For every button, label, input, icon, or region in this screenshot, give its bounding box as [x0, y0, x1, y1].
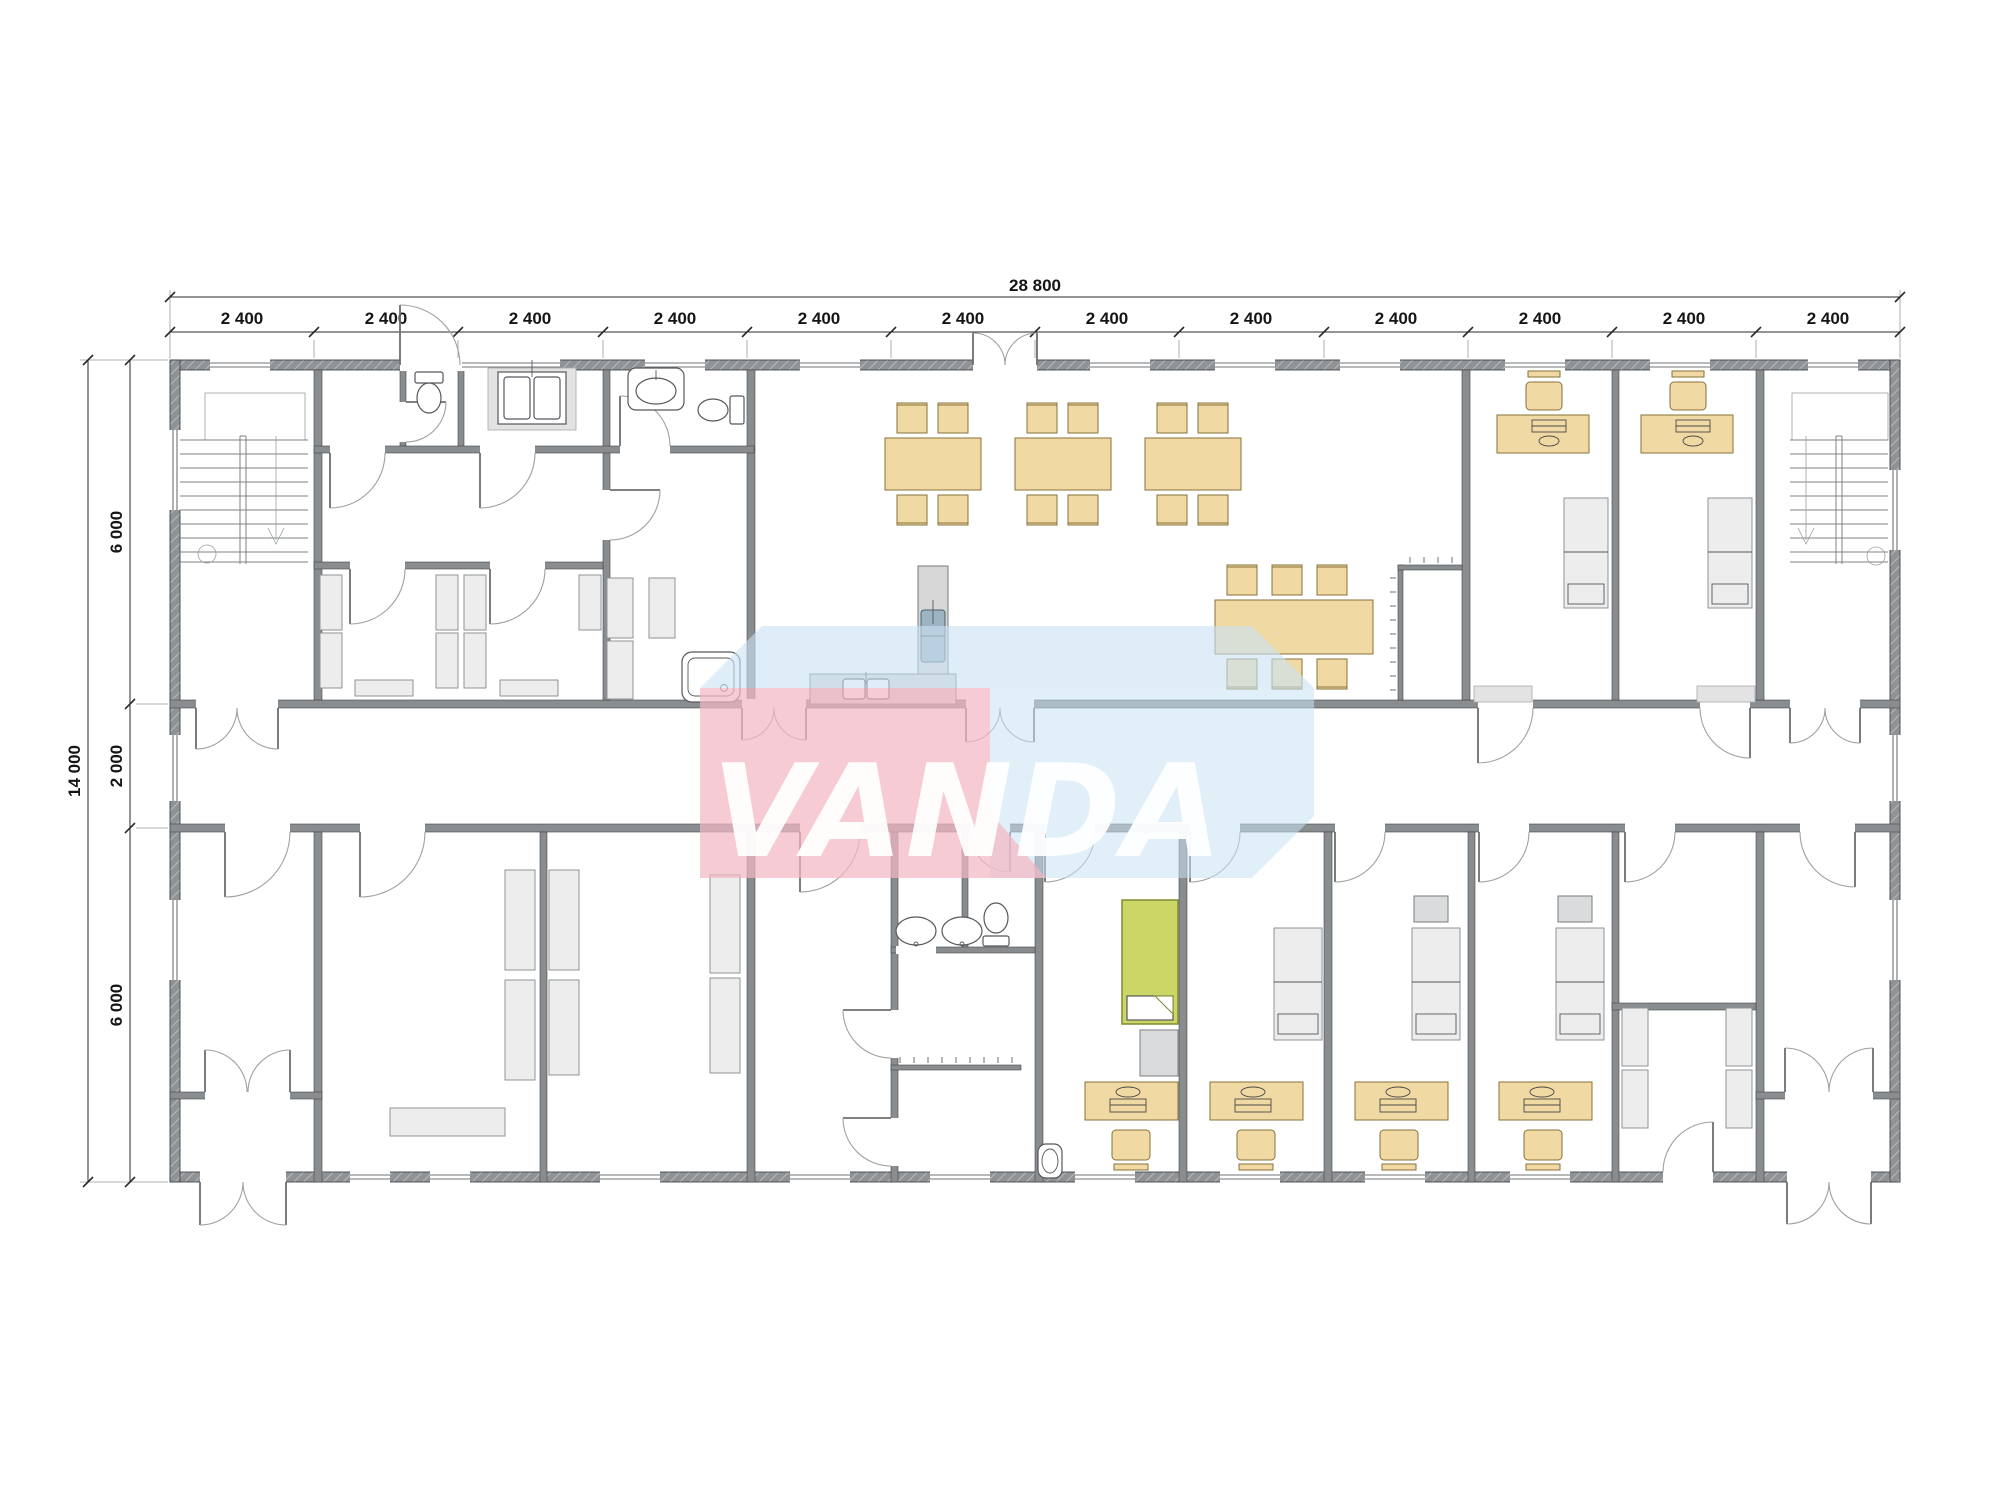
window-icon [350, 1171, 390, 1183]
toilet-icon [415, 372, 443, 413]
window-icon [430, 1171, 470, 1183]
window-icon [1808, 359, 1858, 371]
door-swing-icon [490, 569, 545, 624]
window-icon [1365, 1171, 1425, 1183]
window-icon [1889, 900, 1901, 980]
bed-icon [1274, 928, 1322, 1040]
window-icon [169, 900, 181, 980]
dim-module: 2 400 [509, 309, 552, 328]
door-swing-icon [610, 490, 660, 540]
office-b [1641, 371, 1752, 608]
staircase-right [1790, 393, 1888, 565]
locker-room-a [320, 575, 458, 696]
sink-icon [1038, 1144, 1062, 1178]
bed-icon [1564, 498, 1608, 608]
desk-icon [1641, 415, 1733, 453]
chair-icon [1526, 371, 1562, 410]
door-swing-icon [360, 832, 425, 897]
sink-icon [942, 917, 982, 946]
dining-table-icon [1015, 403, 1111, 525]
door-swing-icon [1785, 1048, 1873, 1092]
dim-segment: 2 000 [107, 745, 126, 788]
window-icon [1510, 1171, 1570, 1183]
door-swing-icon [1478, 708, 1533, 763]
chair-icon [1237, 1130, 1275, 1170]
chair-icon [1112, 1130, 1150, 1170]
sink-icon [628, 368, 684, 410]
dim-segment: 6 000 [107, 984, 126, 1027]
bed-icon [1122, 900, 1178, 1024]
door-swing-icon [1787, 1182, 1871, 1224]
storage-room-1 [390, 870, 535, 1136]
door-swing-icon [350, 569, 405, 624]
window-icon [1090, 359, 1150, 371]
door-swing-icon [1790, 708, 1860, 743]
desk-icon [1210, 1082, 1303, 1120]
door-swing-icon [225, 832, 290, 897]
window-icon [930, 1171, 990, 1183]
floor-plan-drawing: 28 800 2 400 2 400 2 400 2 400 2 400 2 4… [0, 0, 2000, 1500]
locker-room-b [464, 575, 601, 696]
window-icon [1505, 359, 1565, 371]
window-icon [1650, 359, 1710, 371]
dim-total-height: 14 000 [65, 745, 84, 797]
dining-table-icon [1145, 403, 1241, 525]
bathroom-top [628, 368, 744, 424]
watermark-text: VANDA [712, 738, 1224, 887]
bedroom-2 [1210, 928, 1322, 1170]
watermark-top-face [700, 626, 1314, 688]
door-swing-icon [400, 305, 518, 367]
storage-room-2 [549, 870, 740, 1075]
dim-segment: 6 000 [107, 511, 126, 554]
desk-icon [1355, 1082, 1448, 1120]
window-icon [790, 1171, 850, 1183]
wc-closet [415, 372, 443, 413]
office-a [1497, 371, 1608, 608]
dimension-left: 14 000 6 000 2 000 6 000 [65, 355, 168, 1187]
window-icon [169, 735, 181, 801]
window-icon [210, 359, 270, 371]
window-icon [1889, 735, 1901, 801]
dim-module: 2 400 [1230, 309, 1273, 328]
laundry-room [488, 360, 576, 430]
locker-room-right [1622, 1008, 1752, 1128]
dim-total-width: 28 800 [1009, 276, 1061, 295]
bedroom-4 [1499, 896, 1604, 1170]
chair-icon [1524, 1130, 1562, 1170]
door-swing-icon [480, 453, 535, 508]
door-swing-icon [1335, 832, 1385, 882]
dim-module: 2 400 [1519, 309, 1562, 328]
dim-module: 2 400 [654, 309, 697, 328]
bed-icon [1412, 928, 1460, 1040]
dim-module: 2 400 [942, 309, 985, 328]
bed-icon [1708, 498, 1752, 608]
window-icon [1889, 470, 1901, 550]
dim-module: 2 400 [798, 309, 841, 328]
bedroom-3 [1355, 896, 1460, 1170]
door-swing-icon [1479, 832, 1529, 882]
window-icon [169, 430, 181, 510]
dim-module: 2 400 [1663, 309, 1706, 328]
door-swing-icon [1800, 832, 1855, 887]
door-swing-icon [1700, 708, 1750, 758]
dim-module: 2 400 [221, 309, 264, 328]
bedroom-1 [1085, 900, 1178, 1170]
desk-icon [1497, 415, 1589, 453]
door-swing-icon [843, 1118, 891, 1166]
toilet-icon [698, 396, 744, 424]
window-icon [800, 359, 860, 371]
desk-icon [1499, 1082, 1592, 1120]
dimension-top: 28 800 2 400 2 400 2 400 2 400 2 400 2 4… [165, 276, 1905, 358]
dining-table-icon [885, 403, 981, 525]
door-swing-icon [200, 1182, 286, 1225]
chair-icon [1380, 1130, 1418, 1170]
dim-module: 2 400 [1375, 309, 1418, 328]
window-icon [600, 1171, 660, 1183]
door-swing-icon [330, 453, 385, 508]
door-swing-icon [1663, 1122, 1713, 1172]
dim-module: 2 400 [1807, 309, 1850, 328]
window-icon [1220, 1171, 1280, 1183]
door-swing-icon [196, 708, 278, 749]
window-icon [1340, 359, 1400, 371]
bed-icon [1556, 928, 1604, 1040]
door-swing-icon [205, 1050, 290, 1092]
dim-module: 2 400 [1086, 309, 1129, 328]
floor-plan-page: 28 800 2 400 2 400 2 400 2 400 2 400 2 4… [0, 0, 2000, 1500]
staircase-left [180, 393, 308, 564]
window-icon [1215, 359, 1275, 371]
toilet-icon [983, 903, 1009, 946]
chair-icon [1670, 371, 1706, 410]
door-swing-icon [843, 1010, 891, 1058]
window-icon [1075, 1171, 1135, 1183]
desk-icon [1085, 1082, 1178, 1120]
sink-icon [896, 917, 936, 946]
door-swing-icon [1625, 832, 1675, 882]
vanda-watermark: VANDA [700, 626, 1314, 887]
